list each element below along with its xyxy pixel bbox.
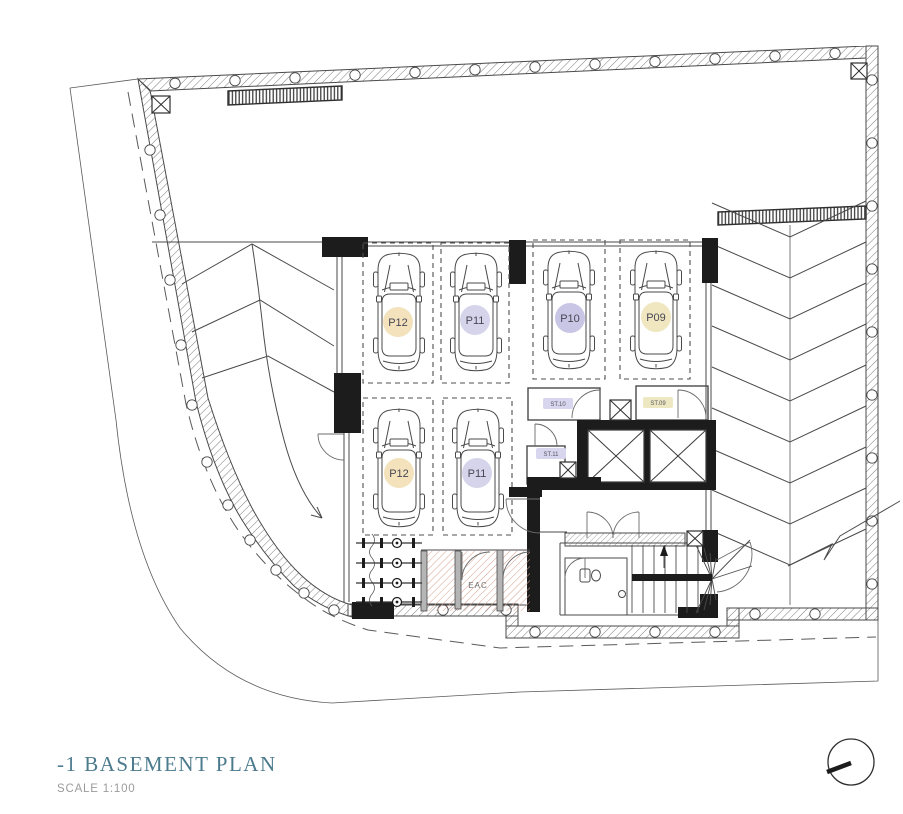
ramp-pedestrian-door — [318, 434, 344, 460]
boundary-wall — [138, 46, 878, 638]
north-indicator — [827, 739, 874, 785]
plan-title: -1 BASEMENT PLAN — [57, 752, 277, 777]
stair-handrail — [632, 574, 712, 581]
drainage-grate-top — [228, 86, 342, 105]
plan-scale-label: SCALE 1:100 — [57, 783, 277, 795]
title-block: -1 BASEMENT PLAN SCALE 1:100 — [57, 752, 277, 795]
stair-threshold-grate — [565, 533, 685, 546]
eac-room: EAC — [421, 550, 530, 611]
parking-label: P12 — [388, 317, 408, 329]
parking-label: P11 — [468, 468, 487, 480]
utility-meters — [356, 534, 422, 607]
floor-plan-drawing: P12 P11 P10 P09 P12 P11 ST.10 ST.09 ST.1… — [0, 0, 903, 814]
storage-label: ST.11 — [544, 452, 560, 458]
floor-drain — [619, 591, 626, 598]
parking-label: P11 — [466, 315, 485, 327]
eac-label: EAC — [468, 581, 487, 590]
stair-up-arrow — [660, 545, 668, 568]
parking-label: P09 — [646, 312, 666, 324]
ramp-break-line — [788, 501, 900, 566]
toilet-fixture — [580, 569, 601, 582]
parking-label: P10 — [560, 313, 580, 325]
storage-label: ST.09 — [650, 401, 666, 407]
parking-label: P12 — [389, 468, 409, 480]
basement-plan-sheet: P12 P11 P10 P09 P12 P11 ST.10 ST.09 ST.1… — [0, 0, 903, 814]
storage-label: ST.10 — [550, 402, 566, 408]
staircase — [560, 540, 752, 615]
boundary-wall-anchors — [145, 48, 877, 637]
